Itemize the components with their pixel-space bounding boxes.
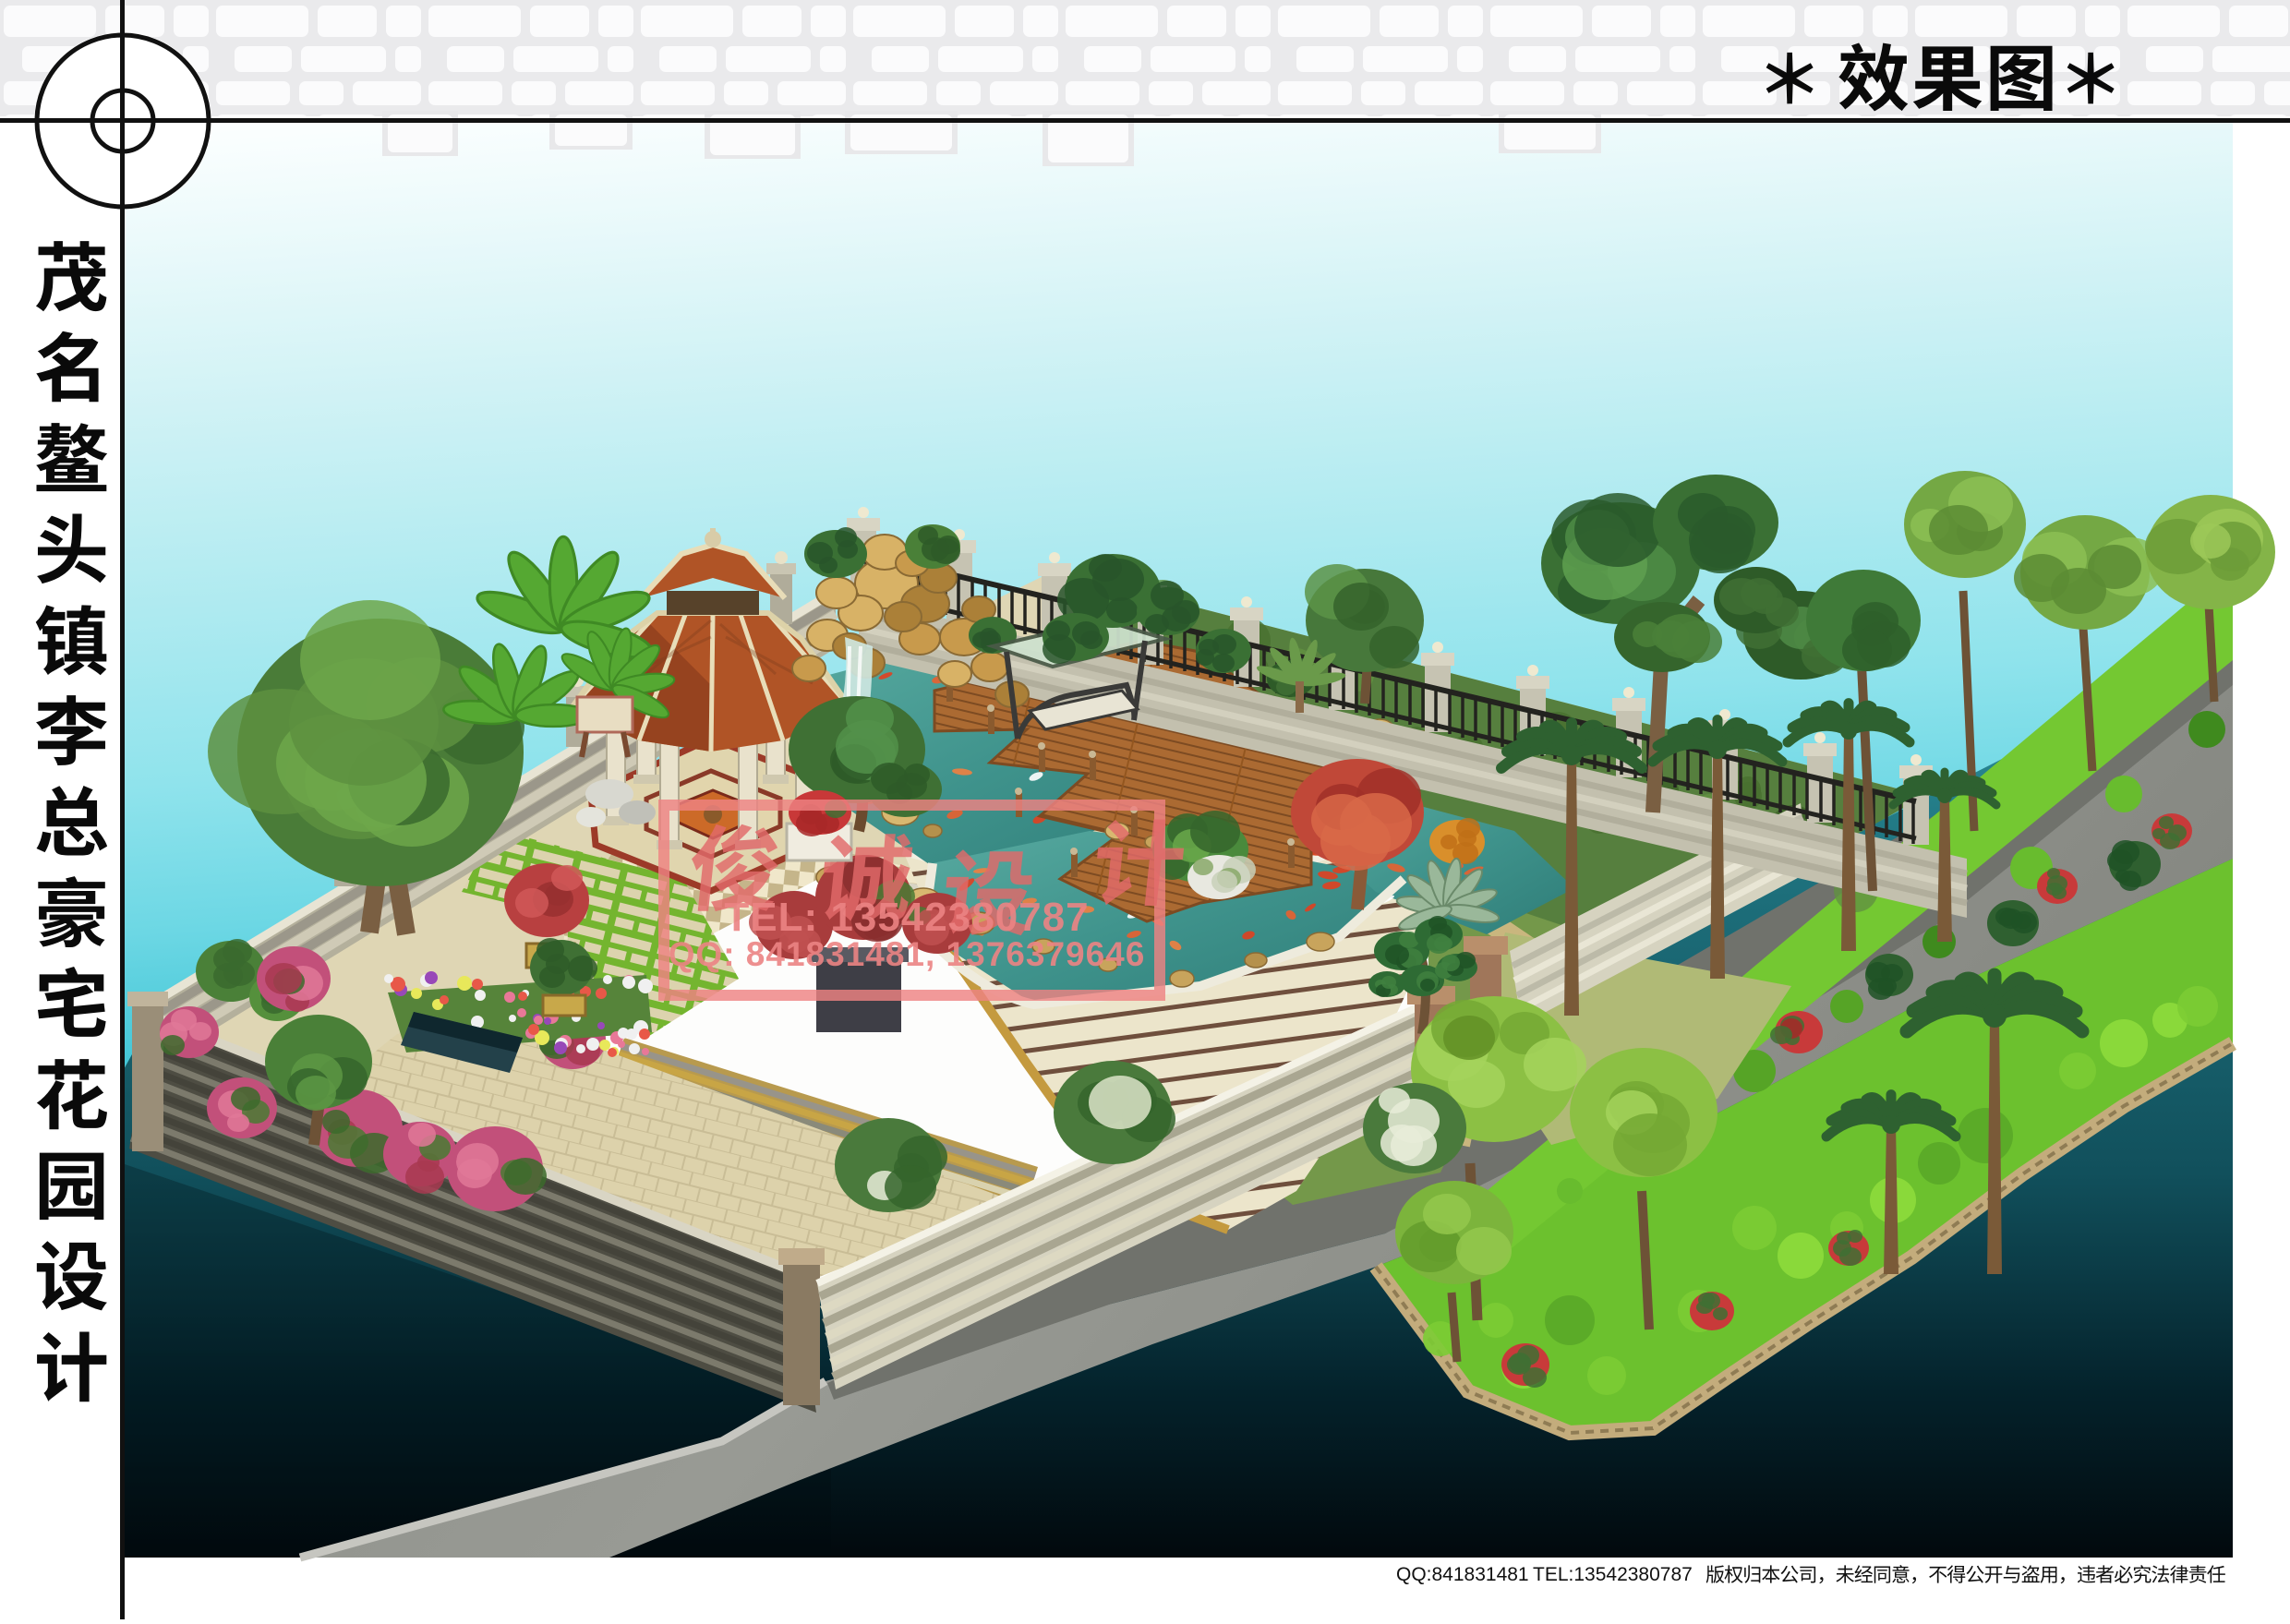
svg-text:QQ: 841831481, 1376379646: QQ: 841831481, 1376379646 (669, 935, 1146, 973)
svg-text:QQ:841831481: QQ:841831481 (1396, 1564, 1529, 1585)
svg-text:TEL:13542380787: TEL:13542380787 (1533, 1564, 1693, 1585)
svg-text:TEL: 13542380787: TEL: 13542380787 (724, 895, 1089, 940)
